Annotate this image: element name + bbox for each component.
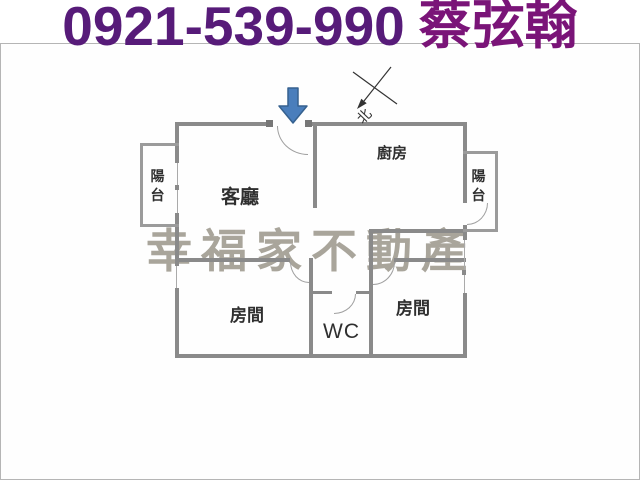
entrance-arrow-icon	[279, 88, 307, 123]
compass-north-label: 北	[353, 105, 374, 126]
screenshot-root: 0921-539-990 蔡弦翰 幸福家不動產 客廳 廚房 房間 房間 WC	[0, 0, 640, 480]
compass-icon: 北	[353, 67, 397, 127]
plan-overlay: 北	[0, 0, 640, 480]
